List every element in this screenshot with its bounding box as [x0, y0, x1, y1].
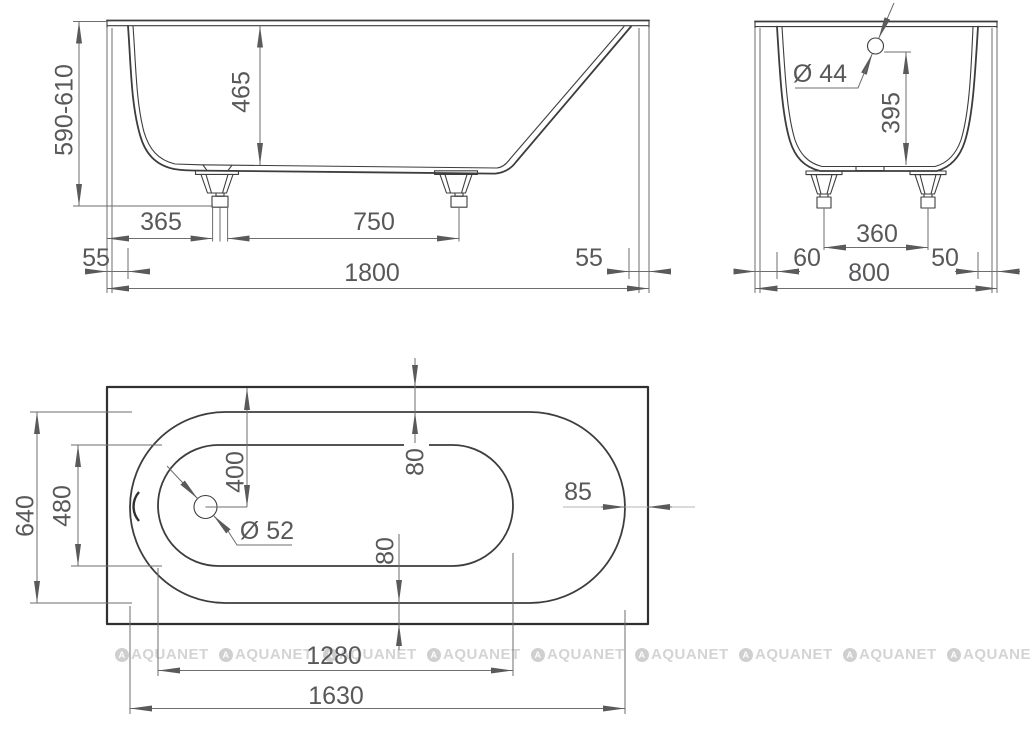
end-view: Ø 44 395 360 60 50 800 — [734, 3, 1020, 293]
drain-recess — [856, 167, 884, 171]
dim-drain-offset: 400 — [222, 451, 250, 493]
dim-drain-to-edge: 365 — [140, 208, 182, 236]
dim-rim-gap-bottom: 80 — [372, 537, 400, 565]
dim-drain-diameter: Ø 52 — [240, 517, 294, 545]
leg-rear — [435, 171, 478, 207]
dim-feet-distance: 360 — [856, 220, 898, 248]
dim-outer-width: 640 — [12, 495, 40, 537]
dim-bottom-length: 1280 — [306, 642, 362, 670]
dim-bottom-width: 480 — [49, 485, 77, 527]
dim-gap-left: 60 — [793, 244, 821, 272]
leg-front — [196, 171, 239, 207]
leg-left — [806, 171, 842, 208]
dim-width: 800 — [848, 259, 890, 287]
dim-overflow-diameter: Ø 44 — [793, 60, 847, 88]
dim-rim-gap-top: 80 — [402, 448, 430, 476]
dim-overflow-height: 395 — [878, 92, 906, 134]
dim-overall-height: 590-610 — [51, 64, 79, 156]
dim-rim-length: 1630 — [308, 682, 364, 710]
drain-leader — [167, 466, 198, 499]
tub-inner-profile — [133, 26, 624, 168]
overflow-hole — [868, 38, 884, 54]
leg-right — [910, 171, 946, 208]
extension-lines — [755, 28, 997, 293]
overflow-mark — [134, 492, 139, 521]
overflow-leader — [867, 53, 873, 67]
dim-rim-lip-left: 55 — [82, 244, 110, 272]
dim-length: 1800 — [344, 259, 400, 287]
drain-leader — [213, 515, 228, 531]
drain-recess — [203, 165, 232, 171]
extension-lines — [107, 28, 649, 293]
dim-inner-depth: 465 — [228, 71, 256, 113]
plan-view: 640 480 400 Ø 52 80 80 85 1280 1630 — [12, 358, 695, 714]
rim-oval — [130, 412, 625, 603]
dim-rim-lip-right: 55 — [575, 244, 603, 272]
dim-gap-right: 50 — [931, 244, 959, 272]
dim-rim-gap-right: 85 — [564, 478, 592, 506]
side-view: 590-610 465 365 750 55 1800 55 — [51, 20, 670, 293]
technical-drawing-page: AAQUANET AAQUANET AAQUANET AAQUANET AAQU… — [0, 0, 1030, 740]
bottom-oval — [158, 445, 513, 566]
extension-lines — [73, 22, 629, 280]
bathtub-drawing: 590-610 465 365 750 55 1800 55 — [0, 0, 1030, 740]
tub-outer-profile — [128, 26, 631, 174]
dim-feet-distance: 750 — [353, 208, 395, 236]
